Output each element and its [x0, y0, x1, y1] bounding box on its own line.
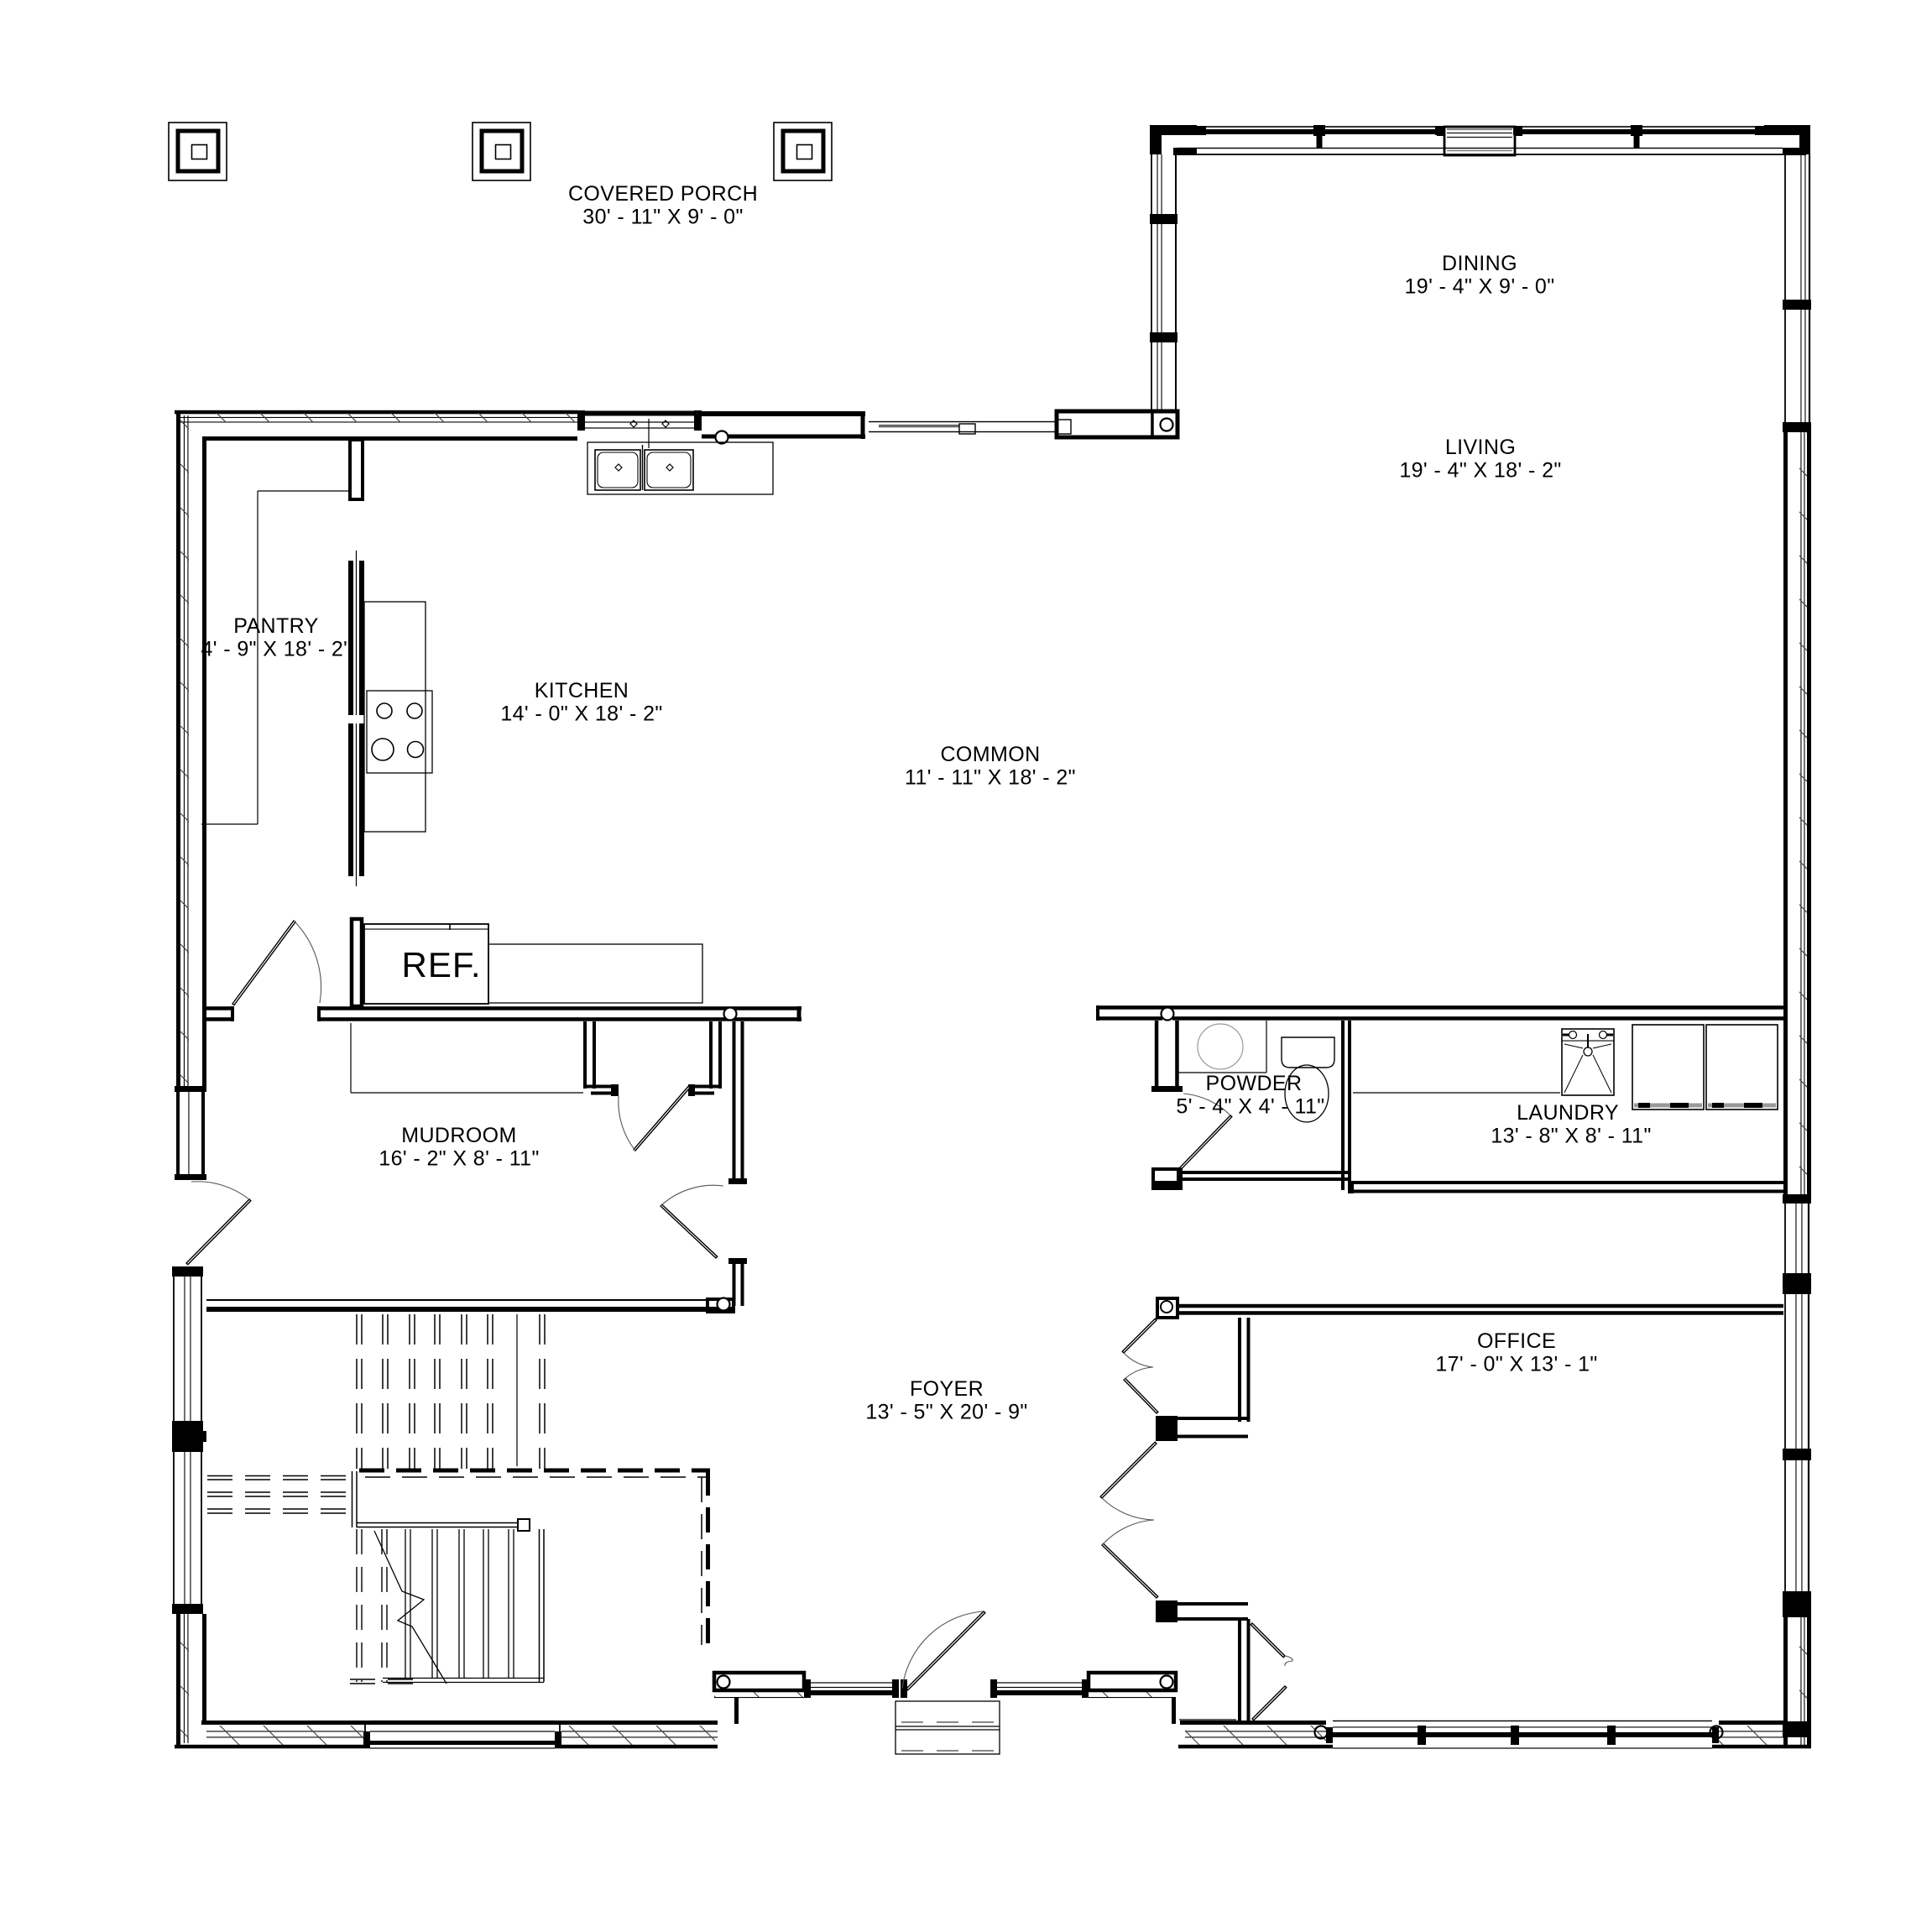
svg-text:30' - 11" X 9' - 0": 30' - 11" X 9' - 0"	[582, 206, 743, 229]
svg-text:11' - 11" X 18' - 2": 11' - 11" X 18' - 2"	[905, 766, 1076, 790]
svg-text:13' - 8" X 8' - 11": 13' - 8" X 8' - 11"	[1491, 1125, 1651, 1148]
svg-text:4' - 9" X 18' - 2": 4' - 9" X 18' - 2"	[201, 638, 351, 661]
svg-text:PANTRY: PANTRY	[233, 614, 319, 638]
svg-text:19' - 4" X 18' - 2": 19' - 4" X 18' - 2"	[1399, 459, 1561, 483]
svg-text:OFFICE: OFFICE	[1477, 1329, 1556, 1353]
svg-text:13' - 5" X 20' - 9": 13' - 5" X 20' - 9"	[865, 1401, 1027, 1424]
svg-text:17' - 0" X 13' - 1": 17' - 0" X 13' - 1"	[1435, 1353, 1597, 1376]
svg-text:POWDER: POWDER	[1206, 1072, 1303, 1095]
svg-text:MUDROOM: MUDROOM	[401, 1124, 517, 1147]
svg-text:14' - 0" X 18' - 2": 14' - 0" X 18' - 2"	[500, 702, 662, 726]
svg-text:LAUNDRY: LAUNDRY	[1517, 1101, 1619, 1125]
svg-text:DINING: DINING	[1442, 252, 1517, 275]
svg-text:COVERED PORCH: COVERED PORCH	[568, 182, 758, 206]
svg-text:LIVING: LIVING	[1445, 436, 1516, 459]
svg-text:REF.: REF.	[401, 945, 481, 984]
svg-text:KITCHEN: KITCHEN	[535, 679, 629, 702]
svg-text:16' - 2" X 8' - 11": 16' - 2" X 8' - 11"	[379, 1147, 539, 1171]
svg-text:19' - 4" X 9' - 0": 19' - 4" X 9' - 0"	[1404, 275, 1554, 299]
svg-text:FOYER: FOYER	[910, 1377, 984, 1401]
svg-text:5' - 4" X 4' - 11": 5' - 4" X 4' - 11"	[1176, 1095, 1324, 1119]
svg-text:COMMON: COMMON	[940, 743, 1040, 766]
